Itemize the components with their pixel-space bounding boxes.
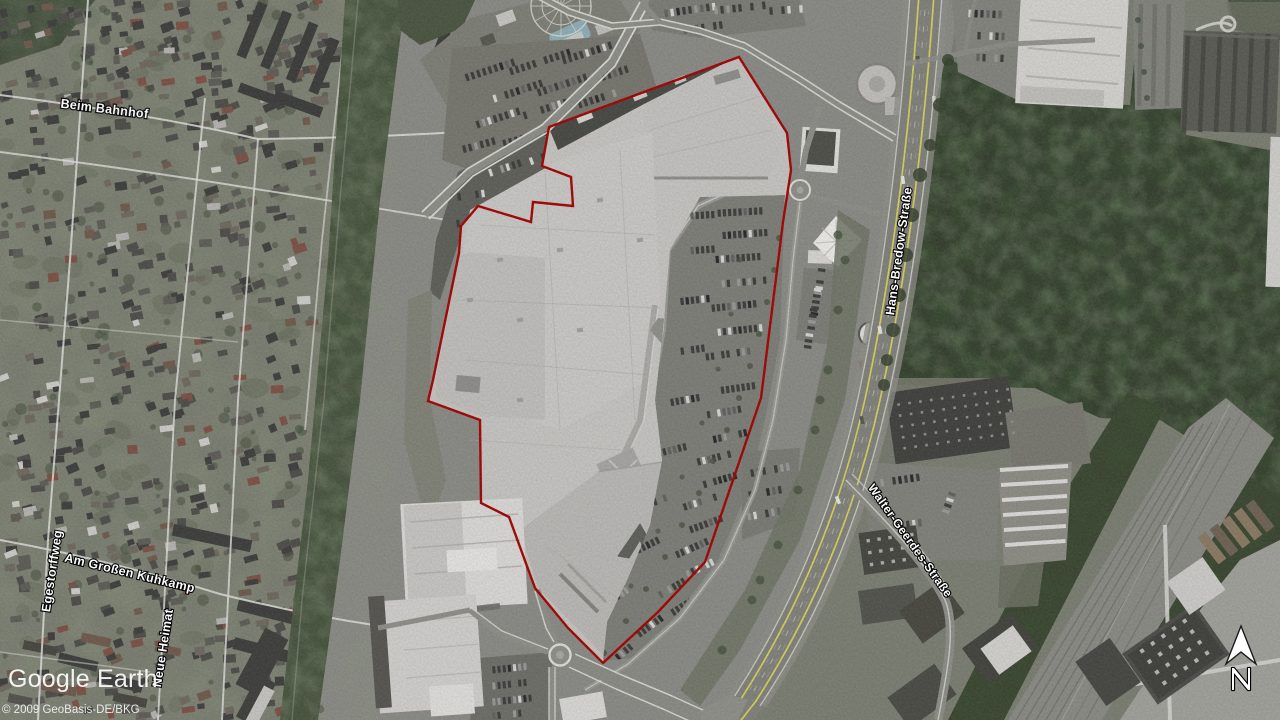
svg-text:© 2009 GeoBasis-DE/BKG: © 2009 GeoBasis-DE/BKG bbox=[2, 704, 140, 716]
svg-text:Google Earth: Google Earth bbox=[8, 665, 158, 693]
